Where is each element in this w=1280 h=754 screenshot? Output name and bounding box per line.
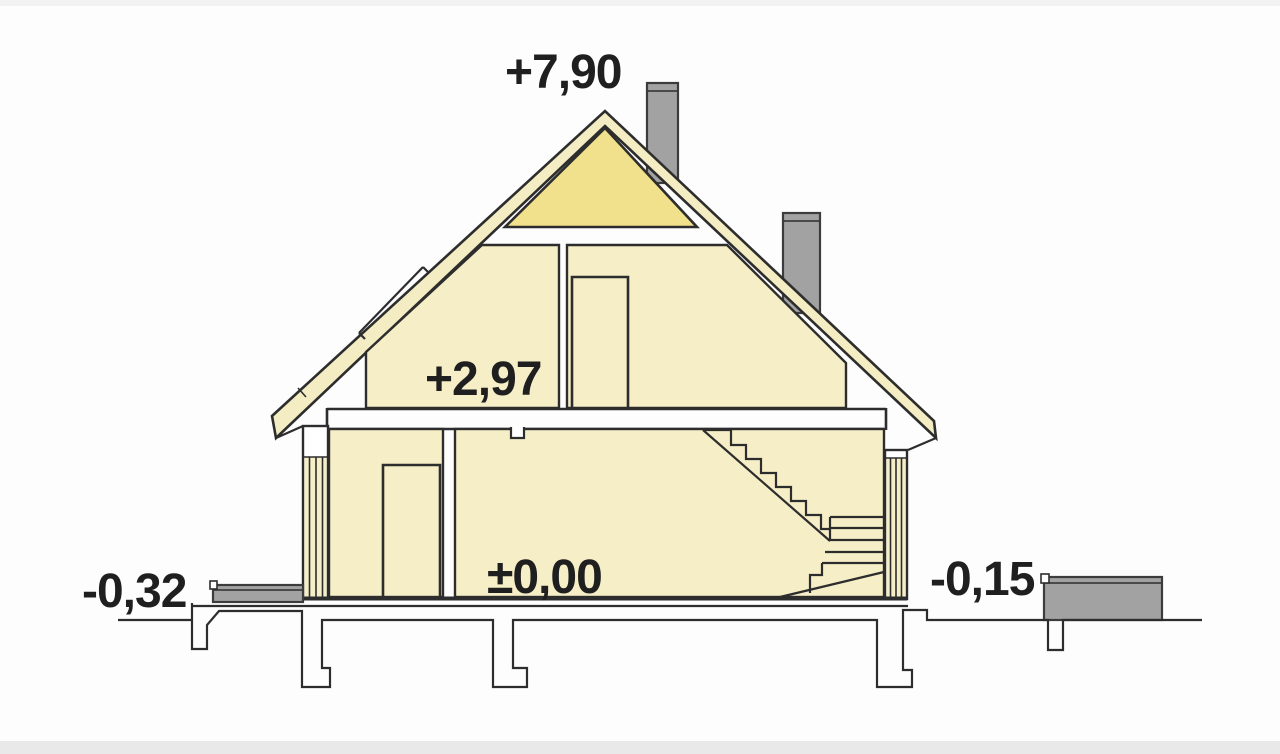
- terrace-right: [1041, 574, 1162, 620]
- label-attic-floor-level: +2,97: [425, 356, 541, 404]
- section-drawing-canvas: +7,90 +2,97 ±0,00 -0,32 -0,15: [0, 0, 1280, 754]
- ground-room-left: [329, 429, 443, 597]
- wall-left: [303, 426, 328, 599]
- label-terrain-right-level: -0,15: [930, 556, 1034, 604]
- wall-right: [885, 450, 907, 599]
- label-ground-floor-level: ±0,00: [487, 554, 602, 602]
- ceiling-notch: [511, 427, 524, 438]
- house-cross-section: [0, 0, 1280, 754]
- eave-soffit-right: [908, 438, 936, 450]
- terrace-left: [210, 581, 303, 602]
- attic-floor-slab: [327, 408, 886, 430]
- label-terrain-left-level: -0,32: [82, 568, 186, 616]
- label-ridge-level: +7,90: [505, 49, 621, 97]
